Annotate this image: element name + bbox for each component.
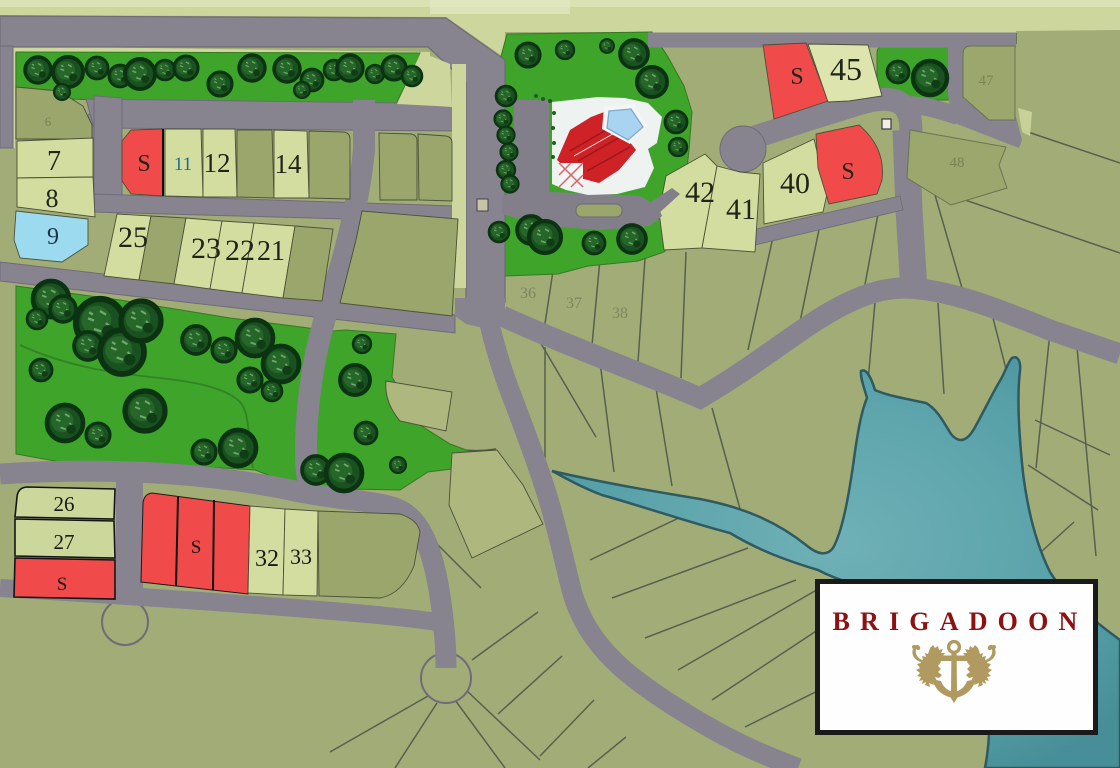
svg-text:S: S [57,574,68,595]
svg-text:6: 6 [45,114,52,129]
svg-text:11: 11 [174,154,192,175]
svg-text:26: 26 [54,492,75,516]
svg-text:47: 47 [979,73,995,89]
svg-text:S: S [790,64,803,90]
svg-text:S: S [841,159,854,185]
svg-text:41: 41 [726,193,756,226]
svg-text:45: 45 [830,51,862,87]
svg-text:25: 25 [118,221,148,254]
svg-text:14: 14 [275,149,303,179]
svg-text:21: 21 [257,236,285,267]
svg-text:38: 38 [612,305,628,322]
svg-text:9: 9 [47,224,59,250]
svg-text:S: S [191,537,202,558]
svg-text:S: S [137,151,150,177]
svg-text:37: 37 [566,295,582,312]
svg-text:48: 48 [950,155,965,171]
svg-text:42: 42 [685,176,715,209]
svg-text:23: 23 [191,232,221,265]
svg-text:7: 7 [47,146,61,177]
svg-text:40: 40 [780,167,810,200]
svg-text:33: 33 [290,544,312,569]
svg-text:BRIGADOON: BRIGADOON [832,607,1087,636]
svg-text:32: 32 [255,546,279,572]
svg-text:22: 22 [225,234,255,267]
svg-text:27: 27 [54,530,75,554]
svg-text:12: 12 [204,148,231,178]
svg-text:8: 8 [46,184,59,213]
svg-text:36: 36 [520,285,536,302]
